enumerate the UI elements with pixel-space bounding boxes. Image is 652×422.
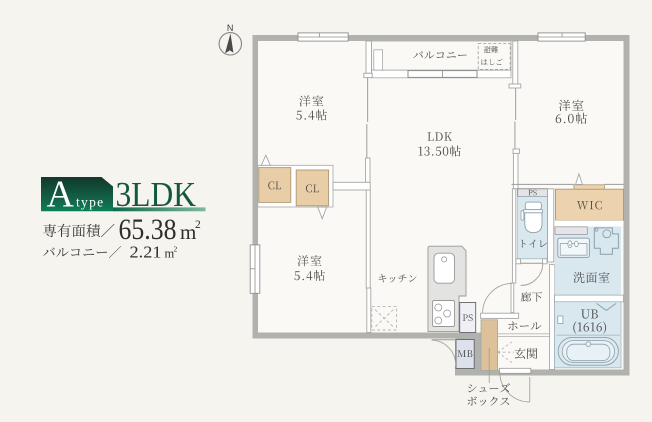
- svg-text:2: 2: [195, 219, 201, 231]
- svg-text:2.21: 2.21: [130, 243, 162, 262]
- svg-text:type: type: [76, 195, 104, 210]
- svg-text:N: N: [227, 23, 234, 33]
- svg-text:3LDK: 3LDK: [116, 176, 197, 214]
- svg-text:A: A: [47, 174, 75, 216]
- svg-text:2: 2: [174, 245, 178, 254]
- svg-text:65.38: 65.38: [119, 213, 177, 246]
- svg-text:m: m: [180, 220, 196, 244]
